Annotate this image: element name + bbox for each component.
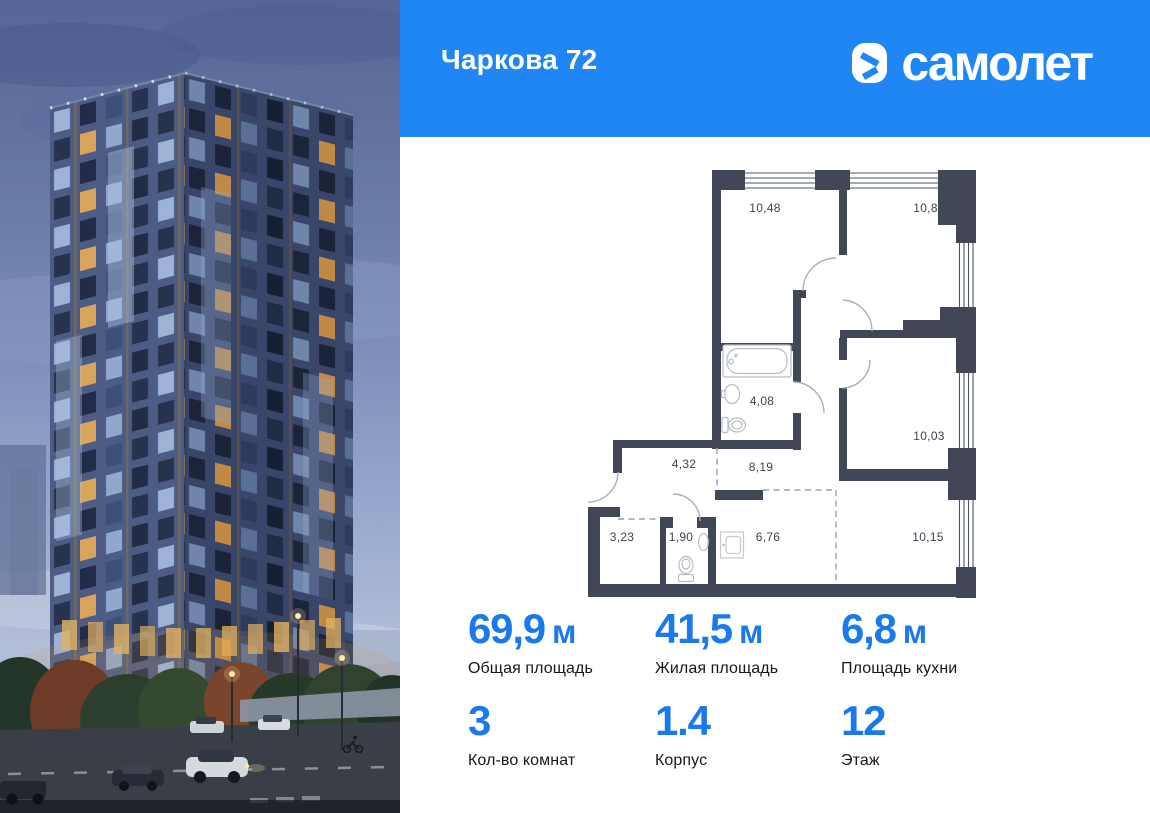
stat-value: 1.4 (655, 700, 845, 742)
stat-label: Кол-во комнат (468, 752, 658, 770)
stat-unit: м (552, 613, 576, 650)
stat-unit: м (739, 613, 763, 650)
room-area-label: 4,32 (672, 457, 697, 471)
stat-label: Жилая площадь (655, 660, 845, 678)
header: Чаркова 72 самолет (400, 0, 1150, 137)
room-area-label: 10,80 (913, 201, 945, 215)
building-photo (0, 0, 400, 813)
stat-label: Этаж (841, 752, 1031, 770)
room-area-label: 1,90 (669, 530, 694, 544)
stat-kitchen-area: 6,8м Площадь кухни (841, 608, 1031, 678)
stat-floor: 12 Этаж (841, 700, 1031, 770)
building-render (0, 0, 400, 813)
stat-value: 3 (468, 700, 658, 742)
stat-label: Корпус (655, 752, 845, 770)
stat-value: 6,8м (841, 608, 1031, 650)
kitchen-sink-icon (721, 532, 744, 558)
brand-logo: самолет (852, 40, 1092, 86)
room-area-label: 4,08 (750, 394, 775, 408)
stat-value: 12 (841, 700, 1031, 742)
room-area-label: 3,23 (610, 530, 635, 544)
zone-dashed-lines (618, 448, 836, 584)
stat-label: Площадь кухни (841, 660, 1031, 678)
room-area-label: 6,76 (756, 530, 781, 544)
samolet-logo-icon (852, 43, 887, 83)
info-panel: Чаркова 72 самолет (400, 0, 1150, 813)
stat-value: 69,9м (468, 608, 658, 650)
brand-name: самолет (901, 41, 1092, 85)
stat-building: 1.4 Корпус (655, 700, 845, 770)
floorplan: 10,48 10,80 4,08 10,03 4,32 8,19 3,23 1,… (585, 165, 980, 605)
listing-card: Чаркова 72 самолет (0, 0, 1150, 813)
room-area-label: 8,19 (749, 460, 774, 474)
room-area-label: 10,48 (749, 201, 781, 215)
stat-living-area: 41,5м Жилая площадь (655, 608, 845, 678)
room-area-label: 10,15 (912, 530, 944, 544)
stat-rooms: 3 Кол-во комнат (468, 700, 658, 770)
stat-label: Общая площадь (468, 660, 658, 678)
stat-total-area: 69,9м Общая площадь (468, 608, 658, 678)
project-title: Чаркова 72 (441, 44, 597, 76)
room-area-label: 10,03 (913, 429, 945, 443)
stat-unit: м (903, 613, 927, 650)
stat-value: 41,5м (655, 608, 845, 650)
